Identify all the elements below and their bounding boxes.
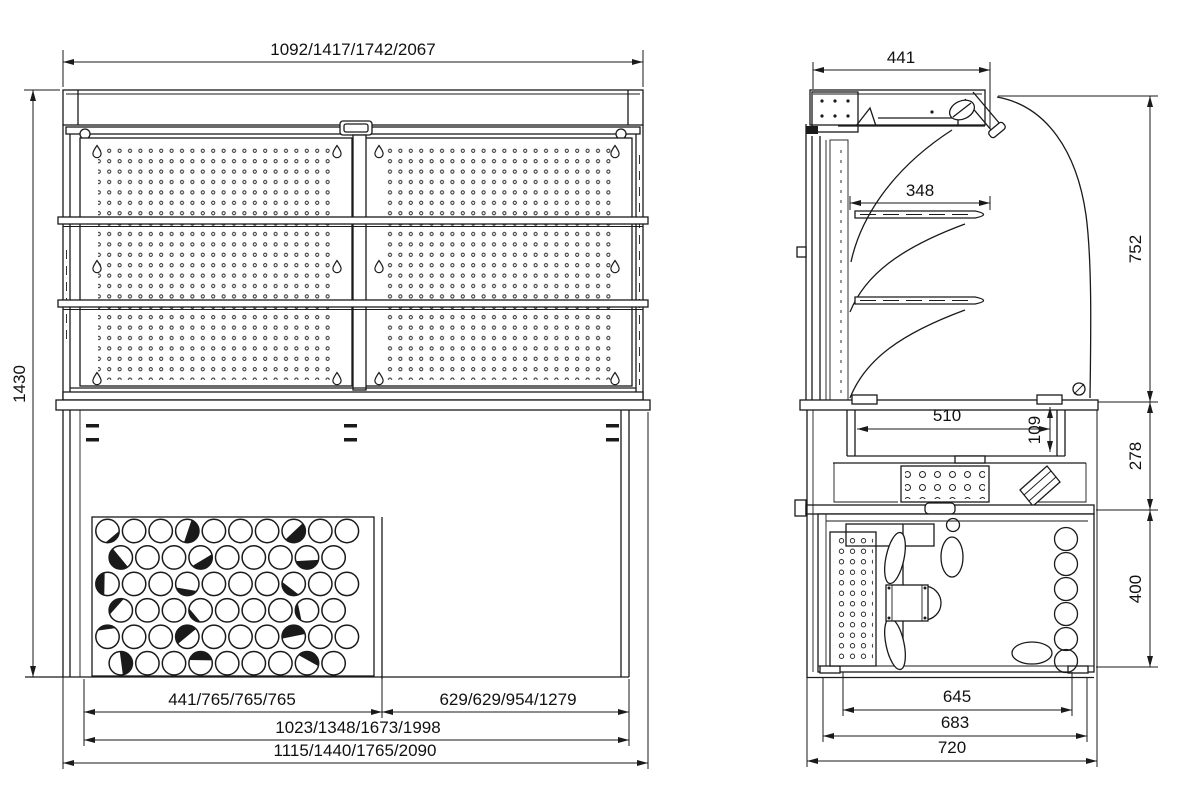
well-fan [1020,466,1060,506]
side-view: 441 348 510 109 752 278 400 645 683 [795,48,1158,767]
front-view: 1092/1417/1742/2067 1430 441/765/765/765… [10,40,650,769]
dim-side-bottom-inner: 645 [943,687,971,706]
side-back-wall [795,124,848,516]
dim-upper-height: 752 [1126,235,1145,263]
dim-well-width: 510 [933,406,961,425]
cantilever-shelves [850,130,984,398]
side-canopy [810,90,1006,139]
dim-front-bottom-inner: 1023/1348/1673/1998 [275,718,440,737]
dim-front-bottom-left: 441/765/765/765 [168,690,296,709]
front-counter [56,388,650,410]
dim-front-bottom-right: 629/629/954/1279 [439,690,576,709]
rail-clip [340,121,372,135]
vent-grille [92,517,374,676]
dim-well-depth: 109 [1025,416,1044,444]
dim-side-shelf: 348 [906,181,934,200]
machine-compartment [807,410,1094,678]
drawing-page: 1092/1417/1742/2067 1430 441/765/765/765… [0,0,1192,798]
dim-side-canopy: 441 [887,48,915,67]
dim-front-bottom-overall: 1115/1440/1765/2090 [274,741,437,760]
dim-mid-height: 278 [1126,442,1145,470]
mid-band [806,503,1094,514]
technical-drawing-canvas: 1092/1417/1742/2067 1430 441/765/765/765… [0,0,1192,798]
dim-front-height: 1430 [10,365,29,403]
front-canopy [63,90,643,125]
glass-front [997,97,1091,398]
counter-ledge [56,400,650,410]
dim-front-width-top: 1092/1417/1742/2067 [270,40,435,59]
center-post [353,135,366,390]
perforated-back-panels [80,135,632,390]
dim-base-height: 400 [1126,575,1145,603]
dim-side-bottom-mid: 683 [941,713,969,732]
dim-side-bottom-overall: 720 [938,738,966,757]
